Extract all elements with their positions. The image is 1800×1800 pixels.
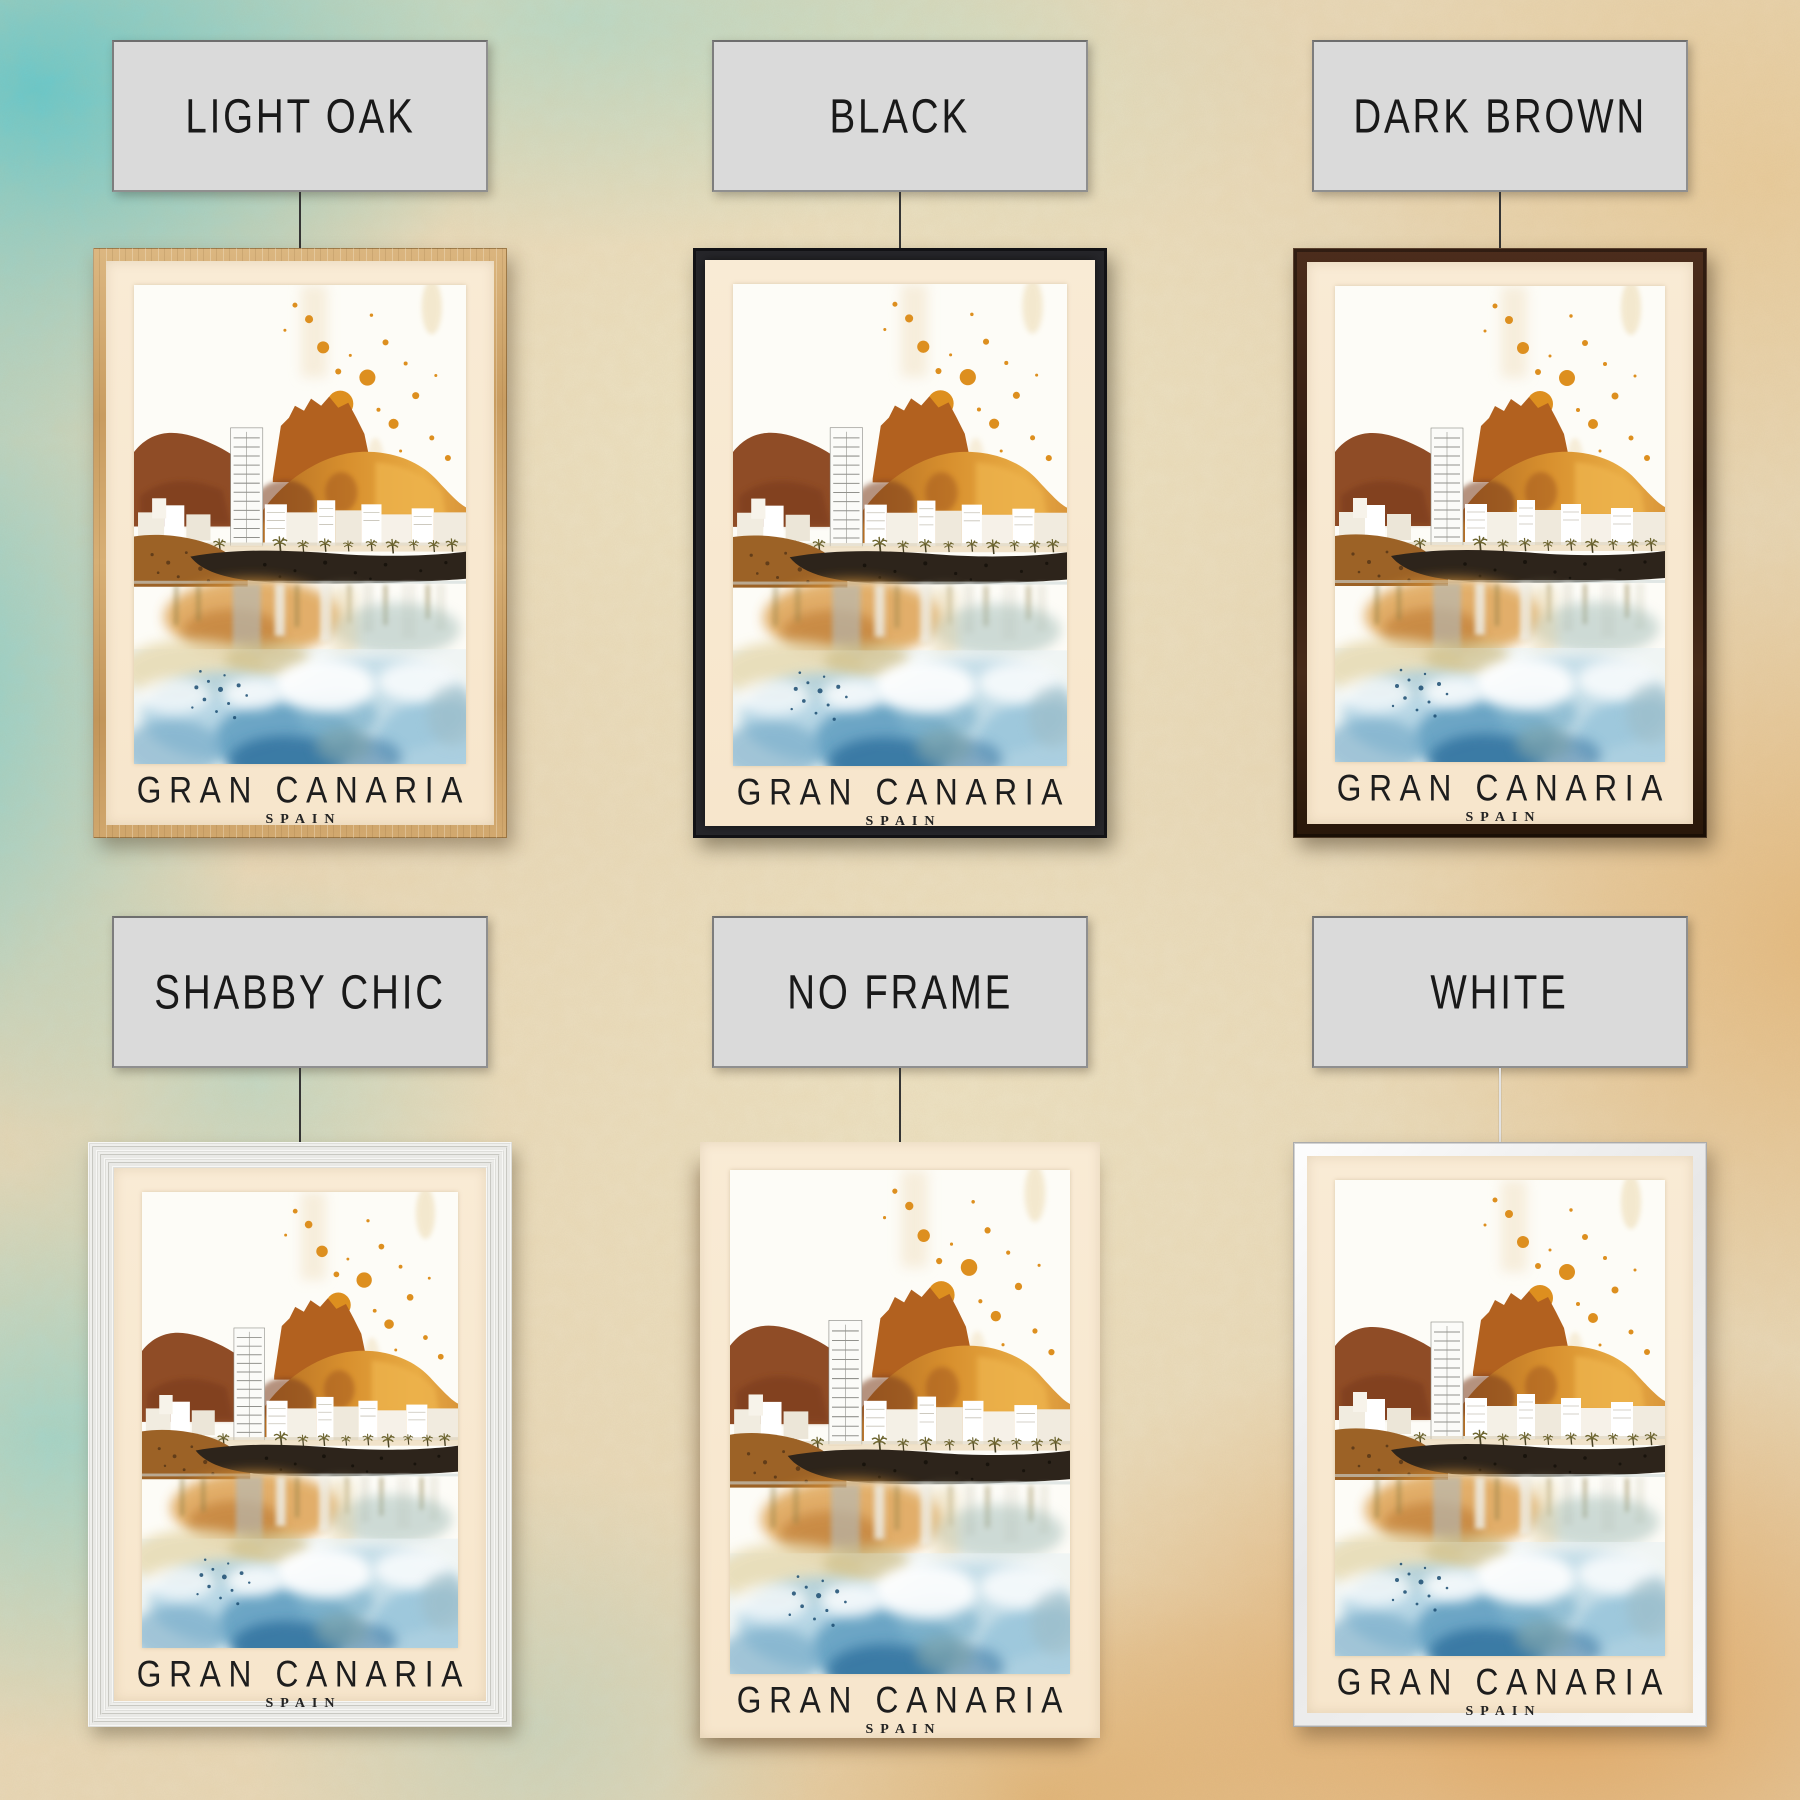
poster-subtitle: SPAIN (1459, 810, 1542, 826)
frame-molding-left (88, 1142, 114, 1727)
poster: GRAN CANARIA SPAIN (700, 1142, 1100, 1738)
variant-label-box: DARK BROWN (1312, 40, 1688, 192)
variant-label-box: NO FRAME (712, 916, 1088, 1068)
poster-subtitle: SPAIN (859, 814, 942, 830)
poster-artwork (142, 1192, 458, 1648)
variant-card-dark-brown: DARK BROWN GRAN CANARIA SPAIN (1200, 40, 1800, 838)
hanging-wire (299, 1068, 301, 1142)
poster: GRAN CANARIA SPAIN (106, 261, 494, 825)
variant-label: NO FRAME (787, 964, 1013, 1019)
frame-molding-right (486, 1142, 512, 1727)
poster-title: GRAN CANARIA (129, 769, 470, 812)
variant-label: SHABBY CHIC (154, 964, 446, 1019)
frame-molding-top (88, 1142, 512, 1168)
variant-label: BLACK (830, 88, 970, 143)
variant-card-shabby-chic: SHABBY CHIC GRAN CANARIA SPAIN (0, 916, 600, 1727)
poster-title: GRAN CANARIA (1329, 767, 1670, 810)
poster-subtitle: SPAIN (1459, 1704, 1542, 1720)
poster-artwork (1335, 1180, 1665, 1656)
hanging-wire (899, 1068, 901, 1142)
poster-title: GRAN CANARIA (729, 770, 1070, 813)
variant-label-box: SHABBY CHIC (112, 916, 488, 1068)
frame-shabby-chic: GRAN CANARIA SPAIN (88, 1142, 512, 1727)
poster: GRAN CANARIA SPAIN (705, 260, 1095, 826)
hanging-wire (1499, 1068, 1501, 1142)
variant-card-white: WHITE GRAN CANARIA SPAIN (1200, 916, 1800, 1727)
poster-artwork (730, 1170, 1070, 1674)
variant-label-box: LIGHT OAK (112, 40, 488, 192)
hanging-wire (1499, 192, 1501, 248)
poster-subtitle: SPAIN (259, 1696, 342, 1712)
poster-subtitle: SPAIN (859, 1722, 942, 1738)
variant-label: LIGHT OAK (185, 88, 415, 143)
poster: GRAN CANARIA SPAIN (1307, 262, 1693, 824)
variant-card-light-oak: LIGHT OAK GRAN CANARIA SPAIN (0, 40, 600, 838)
poster-unframed: GRAN CANARIA SPAIN (700, 1142, 1100, 1738)
poster-title: GRAN CANARIA (729, 1679, 1070, 1722)
poster-title: GRAN CANARIA (129, 1653, 470, 1696)
hanging-wire (899, 192, 901, 248)
frame-black: GRAN CANARIA SPAIN (693, 248, 1107, 838)
poster-artwork (733, 284, 1067, 766)
poster: GRAN CANARIA SPAIN (1307, 1156, 1693, 1713)
variant-label: WHITE (1431, 964, 1569, 1019)
poster-subtitle: SPAIN (259, 812, 342, 828)
frame-dark-brown: GRAN CANARIA SPAIN (1293, 248, 1707, 838)
variant-label: DARK BROWN (1353, 88, 1647, 143)
poster-title: GRAN CANARIA (1329, 1661, 1670, 1704)
frame-light-oak: GRAN CANARIA SPAIN (93, 248, 507, 838)
poster-artwork (134, 285, 466, 764)
variant-card-black: BLACK GRAN CANARIA SPAIN (600, 40, 1200, 838)
poster: GRAN CANARIA SPAIN (114, 1168, 486, 1701)
variant-card-no-frame: NO FRAME GRAN CANARIA SPAIN (600, 916, 1200, 1738)
variant-label-box: WHITE (1312, 916, 1688, 1068)
frame-white: GRAN CANARIA SPAIN (1293, 1142, 1707, 1727)
poster-artwork (1335, 286, 1665, 762)
hanging-wire (299, 192, 301, 248)
variant-label-box: BLACK (712, 40, 1088, 192)
